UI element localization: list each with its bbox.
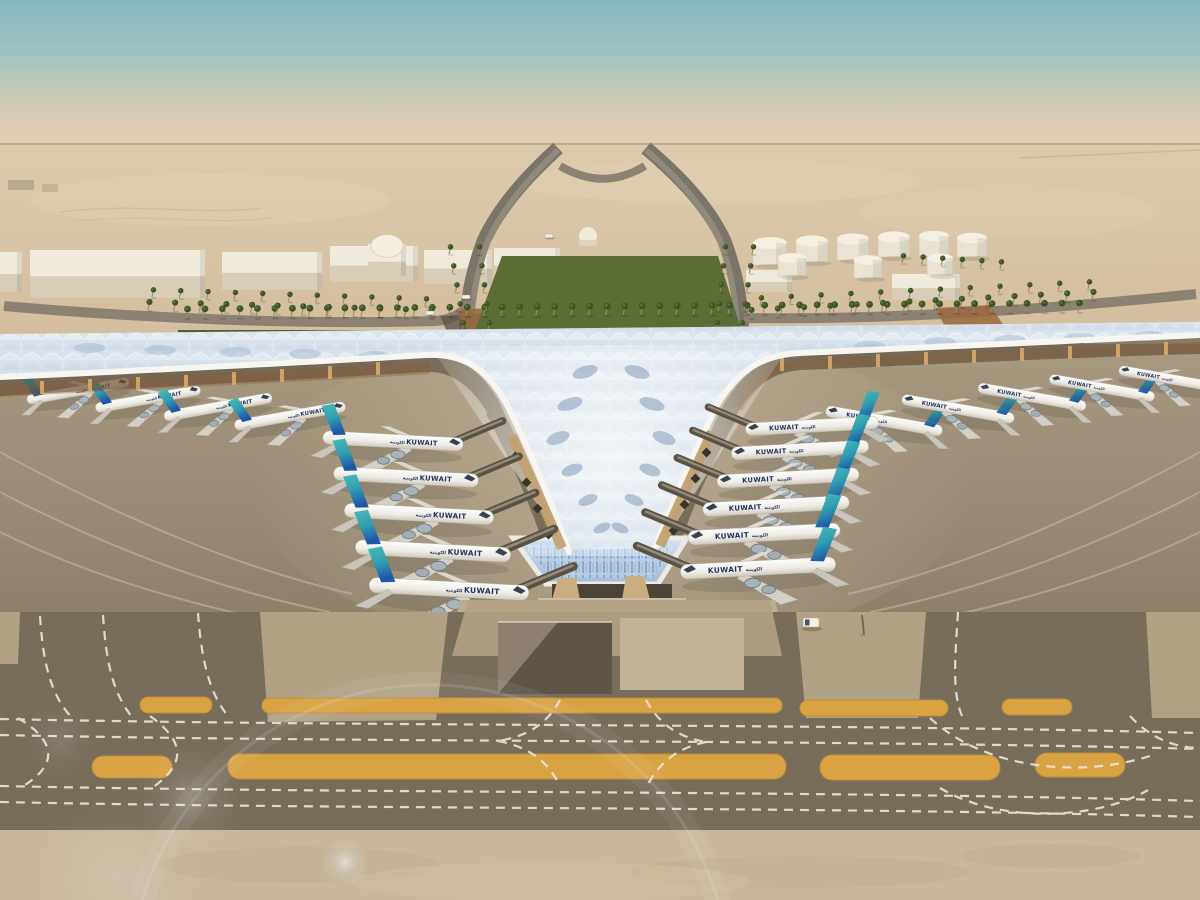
engine xyxy=(390,493,403,501)
flare-spot xyxy=(321,838,369,886)
engine xyxy=(415,568,429,577)
soffit-column xyxy=(184,375,188,388)
distant-structure xyxy=(42,184,58,192)
soffit-column xyxy=(780,358,784,371)
building xyxy=(0,252,22,292)
soffit-column xyxy=(136,377,140,390)
soffit-column xyxy=(1020,348,1024,361)
service-ramp xyxy=(498,618,744,694)
soffit-column xyxy=(1164,342,1168,355)
fuel-tank xyxy=(878,231,913,261)
fuel-tank xyxy=(854,255,885,282)
soffit-column xyxy=(328,366,332,379)
building xyxy=(222,252,322,290)
soffit-column xyxy=(40,381,44,394)
soffit-column xyxy=(88,379,92,392)
fuel-tank xyxy=(778,253,809,280)
soffit-column xyxy=(232,372,236,385)
engine xyxy=(402,530,416,539)
green-median xyxy=(472,256,744,338)
soffit-column xyxy=(972,350,976,363)
soffit-column xyxy=(1068,346,1072,359)
soffit-column xyxy=(924,352,928,365)
sky xyxy=(0,0,1200,150)
engine xyxy=(377,456,390,464)
engine xyxy=(762,585,776,594)
soffit-column xyxy=(280,369,284,382)
desert-background xyxy=(0,143,1200,354)
scene-canvas: الكويتية KUWAITالكويتية KUWAITالكويتية K… xyxy=(0,0,1200,900)
airport-aerial-render: الكويتية KUWAITالكويتية KUWAITالكويتية K… xyxy=(0,0,1200,900)
service-vehicle xyxy=(802,618,822,632)
soffit-column xyxy=(876,354,880,367)
soffit-column xyxy=(828,356,832,369)
building xyxy=(368,235,406,276)
soffit-column xyxy=(376,362,380,375)
distant-structure xyxy=(8,180,34,190)
horizon-road xyxy=(0,143,1200,145)
soffit-column xyxy=(1116,344,1120,357)
